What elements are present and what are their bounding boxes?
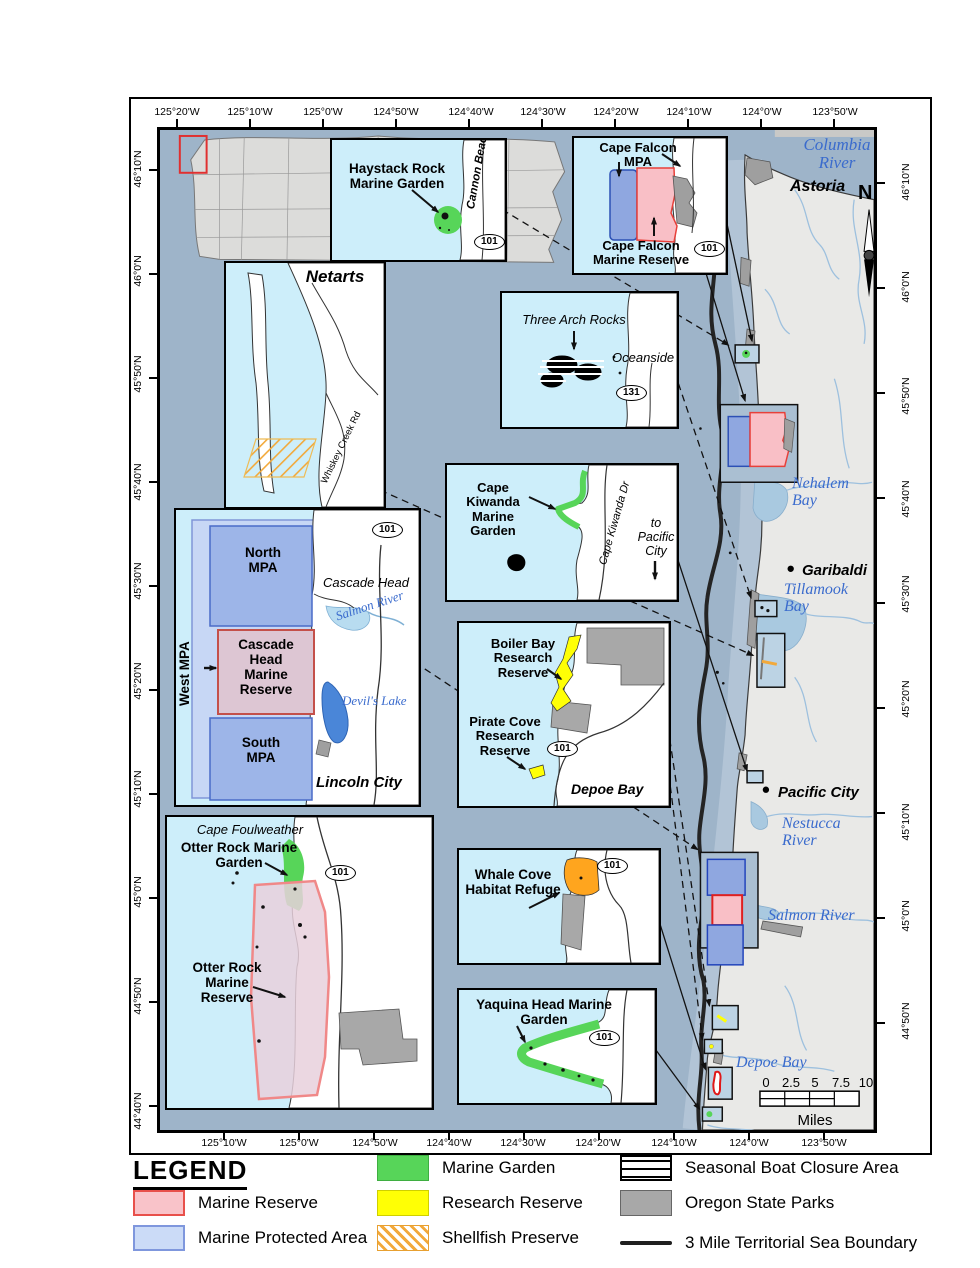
yaquina-garden-label: Yaquina Head Marine Garden	[469, 998, 619, 1028]
mpa-swatch	[133, 1225, 185, 1251]
shellfish-preserve-swatch	[377, 1225, 429, 1251]
route-101-shield: 101	[597, 858, 628, 874]
lat-label: 45°40'N	[900, 477, 912, 521]
inset-netarts: Netarts Whiskey Creek Rd	[224, 261, 386, 509]
otter-garden-label: Otter Rock Marine Garden	[175, 841, 303, 871]
lon-label: 124°50'W	[345, 1137, 405, 1149]
legend-label: Shellfish Preserve	[442, 1228, 579, 1248]
lat-label: 46°0'N	[132, 249, 144, 293]
cape-falcon-mpa-label: Cape Falcon MPA	[594, 141, 682, 170]
lat-label: 46°10'N	[132, 147, 144, 191]
inset-three-arch-rocks: Three Arch Rocks Oceanside 131	[500, 291, 679, 429]
legend-item-marine-garden: Marine Garden	[377, 1155, 555, 1181]
north-mpa-label: North MPA	[232, 546, 294, 576]
lat-label: 45°10'N	[900, 800, 912, 844]
pacific-city-label: Pacific City	[778, 784, 859, 801]
three-arch-label: Three Arch Rocks	[514, 313, 634, 327]
lon-label: 124°30'W	[513, 106, 573, 118]
lat-label: 46°10'N	[900, 160, 912, 204]
west-mpa-label: West MPA	[178, 641, 193, 706]
lincoln-city-label: Lincoln City	[316, 774, 402, 791]
south-mpa-label: South MPA	[230, 736, 292, 766]
lat-label: 44°50'N	[900, 999, 912, 1043]
nestucca-river-label: Nestucca River	[782, 816, 858, 850]
legend-label: Marine Protected Area	[198, 1228, 367, 1248]
north-letter: N	[858, 182, 872, 204]
route-101-shield: 101	[372, 522, 403, 538]
cascade-reserve-label: Cascade Head Marine Reserve	[228, 638, 304, 697]
research-reserve-swatch	[377, 1190, 429, 1216]
legend-item-boat-closure: Seasonal Boat Closure Area	[620, 1155, 899, 1181]
pirate-cove-label: Pirate Cove Research Reserve	[461, 715, 549, 758]
inset-haystack-rock: Haystack Rock Marine Garden Cannon Beach…	[330, 138, 507, 262]
marine-garden-swatch	[377, 1155, 429, 1181]
columbia-river-label: Columbia River	[798, 136, 876, 172]
scale-bar	[760, 1091, 859, 1106]
astoria-label: Astoria	[790, 178, 845, 196]
legend-item-state-parks: Oregon State Parks	[620, 1190, 834, 1216]
legend-item-mpa: Marine Protected Area	[133, 1225, 367, 1251]
legend-item-territorial-boundary: 3 Mile Territorial Sea Boundary	[620, 1233, 917, 1253]
scale-tick-3: 7.5	[828, 1076, 854, 1090]
devils-lake-label: Devil's Lake	[342, 694, 407, 708]
to-pacific-city-label: to Pacific City	[633, 517, 679, 558]
nehalem-bay-label: Nehalem Bay	[792, 476, 862, 510]
legend-title: LEGEND	[133, 1155, 247, 1190]
legend-label: Research Reserve	[442, 1193, 583, 1213]
route-131-shield: 131	[616, 385, 647, 401]
lat-label: 45°40'N	[132, 460, 144, 504]
right-tick-marks	[877, 182, 885, 1032]
lat-label: 45°30'N	[132, 559, 144, 603]
scale-tick-1: 2.5	[778, 1076, 804, 1090]
lon-label: 124°20'W	[568, 1137, 628, 1149]
lat-label: 46°0'N	[900, 265, 912, 309]
netarts-inset-map	[226, 263, 384, 507]
territorial-boundary-swatch	[620, 1241, 672, 1245]
lon-label: 125°10'W	[194, 1137, 254, 1149]
scale-tick-0: 0	[758, 1076, 774, 1090]
inset-otter-rock: Cape Foulweather Otter Rock Marine Garde…	[165, 815, 434, 1110]
route-101-shield: 101	[547, 741, 578, 757]
oceanside-label: Oceanside	[612, 351, 674, 365]
route-101-shield: 101	[694, 241, 725, 257]
lon-label: 124°0'W	[719, 1137, 779, 1149]
cape-foulweather-label: Cape Foulweather	[181, 823, 319, 837]
whale-cove-label: Whale Cove Habitat Refuge	[465, 868, 561, 898]
legend-label: Marine Reserve	[198, 1193, 318, 1213]
lat-label: 45°0'N	[132, 870, 144, 914]
lon-label: 125°0'W	[293, 106, 353, 118]
inset-boiler-pirate: Boiler Bay Research Reserve Pirate Cove …	[457, 621, 671, 808]
tillamook-bay-label: Tillamook Bay	[784, 582, 864, 616]
scale-unit-label: Miles	[788, 1113, 842, 1130]
top-tick-marks	[176, 119, 846, 127]
garibaldi-dot	[788, 566, 794, 572]
lat-label: 45°50'N	[900, 374, 912, 418]
boat-closure-swatch	[620, 1155, 672, 1181]
lon-label: 125°0'W	[269, 1137, 329, 1149]
lon-label: 124°10'W	[659, 106, 719, 118]
state-parks-swatch	[620, 1190, 672, 1216]
lat-label: 45°10'N	[132, 767, 144, 811]
lat-label: 45°30'N	[900, 572, 912, 616]
depoe-bay-inset-label: Depoe Bay	[571, 781, 643, 797]
main-map: Columbia River Astoria Nehalem Bay Garib…	[157, 127, 877, 1133]
cape-falcon-reserve-label: Cape Falcon Marine Reserve	[588, 239, 694, 268]
scale-tick-2: 5	[807, 1076, 823, 1090]
lon-label: 125°10'W	[220, 106, 280, 118]
boiler-bay-label: Boiler Bay Research Reserve	[475, 637, 571, 680]
inset-cape-falcon: Cape Falcon MPA Cape Falcon Marine Reser…	[572, 136, 728, 275]
lon-label: 124°40'W	[419, 1137, 479, 1149]
marine-reserve-swatch	[133, 1190, 185, 1216]
scale-tick-4: 10	[856, 1076, 876, 1090]
legend-label: Oregon State Parks	[685, 1193, 834, 1213]
haystack-garden-label: Haystack Rock Marine Garden	[338, 162, 456, 192]
garibaldi-label: Garibaldi	[802, 562, 867, 579]
lat-label: 44°50'N	[132, 974, 144, 1018]
lon-label: 124°30'W	[493, 1137, 553, 1149]
pacific-city-dot	[763, 787, 769, 793]
legend-item-shellfish-preserve: Shellfish Preserve	[377, 1225, 579, 1251]
inset-cape-kiwanda: Cape Kiwanda Marine Garden Cape Kiwanda …	[445, 463, 679, 602]
netarts-title: Netarts	[292, 268, 378, 287]
kiwanda-garden-label: Cape Kiwanda Marine Garden	[461, 481, 525, 538]
legend-item-marine-reserve: Marine Reserve	[133, 1190, 318, 1216]
boat-closure-rocks	[538, 356, 604, 387]
map-sheet: 125°20'W 125°10'W 125°0'W 124°50'W 124°4…	[0, 0, 980, 1268]
lat-label: 44°40'N	[132, 1089, 144, 1133]
left-tick-marks	[149, 169, 157, 1119]
route-101-shield: 101	[589, 1030, 620, 1046]
legend-item-research-reserve: Research Reserve	[377, 1190, 583, 1216]
legend-label: Marine Garden	[442, 1158, 555, 1178]
route-101-shield: 101	[474, 234, 505, 250]
depoe-bay-label: Depoe Bay	[736, 1055, 846, 1072]
lon-label: 123°50'W	[805, 106, 865, 118]
lon-label: 124°40'W	[441, 106, 501, 118]
lat-label: 45°0'N	[900, 894, 912, 938]
lon-label: 125°20'W	[147, 106, 207, 118]
salmon-river-label: Salmon River	[768, 908, 888, 925]
legend-label: Seasonal Boat Closure Area	[685, 1158, 899, 1178]
lon-label: 124°10'W	[644, 1137, 704, 1149]
otter-reserve-label: Otter Rock Marine Reserve	[179, 961, 275, 1006]
lat-label: 45°50'N	[132, 352, 144, 396]
inset-whale-cove: Whale Cove Habitat Refuge 101	[457, 848, 661, 965]
inset-yaquina-head: Yaquina Head Marine Garden 101	[457, 988, 657, 1105]
lon-label: 124°20'W	[586, 106, 646, 118]
lon-label: 124°50'W	[366, 106, 426, 118]
inset-cascade-head: North MPA West MPA Cascade Head Marine R…	[174, 508, 421, 807]
lat-label: 45°20'N	[900, 677, 912, 721]
route-101-shield: 101	[325, 865, 356, 881]
legend-label: 3 Mile Territorial Sea Boundary	[685, 1233, 917, 1253]
lon-label: 123°50'W	[794, 1137, 854, 1149]
lon-label: 124°0'W	[732, 106, 792, 118]
lat-label: 45°20'N	[132, 659, 144, 703]
